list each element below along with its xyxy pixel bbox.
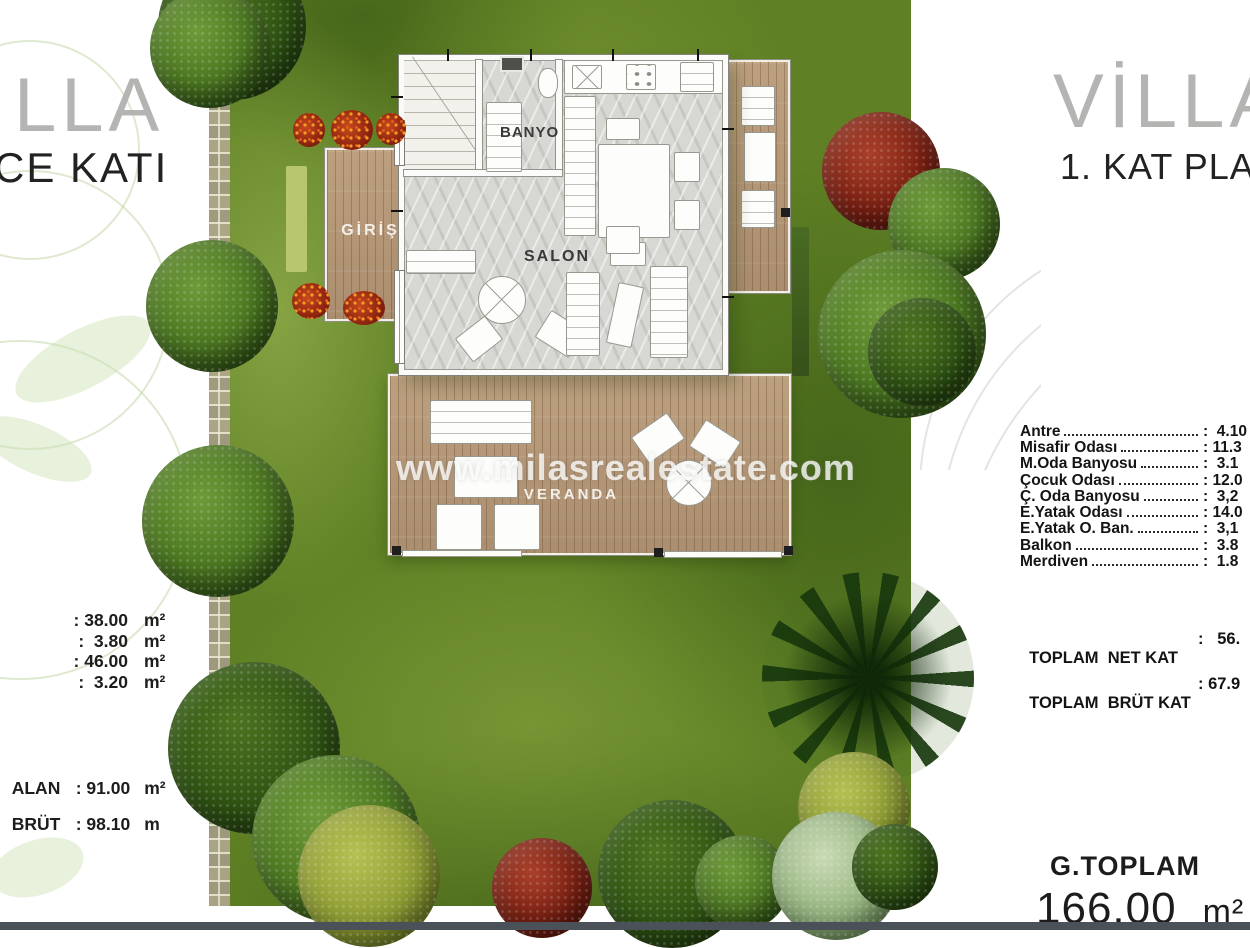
veranda-railing — [402, 550, 522, 557]
area-unit: m² — [144, 651, 165, 672]
left-subtitle-partial: CE KATI — [0, 144, 168, 192]
net-total-label: TOPLAM NET KAT — [1029, 649, 1178, 667]
room-label: M.Oda Banyosu — [1020, 456, 1137, 471]
hedge — [792, 227, 809, 376]
dotted-leader — [1127, 515, 1198, 517]
plan-title: VİLLA — [1053, 58, 1250, 145]
room-label: Misafir Odası — [1020, 440, 1117, 455]
total-unit: m — [144, 814, 160, 834]
outdoor-chair — [494, 504, 540, 550]
room-label: Balkon — [1020, 538, 1072, 553]
stove — [626, 64, 656, 90]
living-room-label: SALON — [524, 248, 590, 266]
gross-total-label: TOPLAM BRÜT KAT — [1029, 694, 1191, 712]
leaf-ornament — [0, 827, 91, 909]
room-label: Antre — [1020, 424, 1060, 439]
room-area-value: : 12.0 — [1203, 473, 1243, 488]
interior-wall — [476, 60, 482, 174]
deck-post — [781, 208, 790, 217]
dining-chair — [674, 152, 700, 182]
outdoor-chair — [436, 504, 482, 550]
dotted-leader — [1138, 531, 1198, 533]
room-area-value: : 14.0 — [1203, 505, 1243, 520]
dimension-tick — [530, 49, 532, 61]
window — [394, 270, 405, 364]
room-area-value: : 3,1 — [1203, 521, 1238, 536]
room-label: Ç. Oda Banyosu — [1020, 489, 1140, 504]
flue-box — [500, 56, 524, 72]
room-area-value: : 3.1 — [1203, 456, 1238, 471]
kitchen-side-counter — [564, 96, 596, 236]
flower-bush — [293, 113, 325, 147]
dotted-leader — [1144, 499, 1198, 501]
sofa — [650, 266, 688, 358]
deck-post — [654, 548, 663, 557]
dimension-tick — [391, 210, 403, 212]
flower-bush — [331, 110, 373, 150]
room-area-value: : 3,2 — [1203, 489, 1238, 504]
room-label: E.Yatak Odası — [1020, 505, 1123, 520]
dotted-leader — [1092, 564, 1198, 566]
dining-chair — [674, 200, 700, 230]
armchair — [606, 226, 640, 254]
dimension-tick — [391, 96, 403, 98]
dimension-tick — [722, 296, 734, 298]
dining-chair — [606, 118, 640, 140]
sofa — [406, 250, 476, 274]
toilet — [538, 68, 558, 98]
total-value: : 98.10 — [76, 814, 130, 834]
room-label: E.Yatak O. Ban. — [1020, 521, 1134, 536]
area-unit: m² — [144, 672, 165, 693]
flower-bush — [292, 283, 330, 319]
room-area-value: : 4.10 — [1203, 424, 1247, 439]
room-label: Çocuk Odası — [1020, 473, 1115, 488]
lounger — [741, 86, 775, 126]
outdoor-sofa — [430, 400, 532, 444]
tree — [868, 298, 976, 406]
grand-total-label: G.TOPLAM — [1050, 851, 1244, 882]
dotted-leader — [1141, 466, 1198, 468]
area-value: : 46.00 — [52, 651, 128, 672]
bathroom-label: BANYO — [500, 124, 559, 141]
staircase — [404, 60, 476, 172]
gross-total-row: TOPLAM BRÜT KAT : 67.9 — [1020, 675, 1250, 732]
dotted-leader — [1064, 434, 1198, 436]
deck-post — [784, 546, 793, 555]
room-area-value: : 1.8 — [1203, 554, 1238, 569]
palm-tree — [762, 572, 974, 784]
left-title-partial: LLA — [14, 62, 164, 149]
area-unit: m² — [144, 610, 165, 631]
tree — [142, 445, 294, 597]
total-label: BRÜT — [12, 814, 76, 835]
plan-subtitle: 1. KAT PLA — [1060, 146, 1250, 188]
gross-total-value: : 67.9 — [1198, 675, 1240, 694]
room-label: Merdiven — [1020, 554, 1088, 569]
area-value: : 38.00 — [52, 610, 128, 631]
lounger — [741, 190, 775, 228]
area-value: : 3.20 — [52, 672, 128, 693]
left-total-row: BRÜT: 98.10m — [2, 793, 160, 835]
net-total-value: : 56. — [1198, 630, 1240, 649]
veranda-railing — [664, 551, 782, 558]
flower-bush — [343, 291, 385, 325]
room-area-value: : 11.3 — [1203, 440, 1242, 455]
dimension-tick — [697, 49, 699, 61]
dining-table — [598, 144, 670, 238]
interior-wall — [404, 170, 562, 176]
bottom-bar — [0, 922, 1250, 930]
dimension-tick — [722, 128, 734, 130]
dotted-leader — [1121, 450, 1198, 452]
flower-bush — [376, 113, 406, 145]
room-area-value: : 3.8 — [1203, 538, 1238, 553]
chaise — [606, 282, 644, 348]
tree — [146, 240, 278, 372]
fridge — [680, 62, 714, 92]
area-unit: m² — [144, 631, 165, 652]
area-value: : 3.80 — [52, 631, 128, 652]
house-floorplan: BANYO SALON — [399, 55, 728, 375]
tree — [852, 824, 938, 910]
kitchen-sink — [572, 65, 602, 89]
side-table — [744, 132, 776, 182]
sofa — [566, 272, 600, 356]
side-balcony-deck — [726, 60, 790, 293]
watermark: www.milasrealestate.com — [396, 447, 856, 489]
dimension-tick — [447, 49, 449, 61]
dotted-leader — [1076, 548, 1198, 550]
planting-strip — [286, 166, 307, 272]
dotted-leader — [1119, 483, 1198, 485]
deck-post — [392, 546, 401, 555]
dimension-tick — [612, 49, 614, 61]
